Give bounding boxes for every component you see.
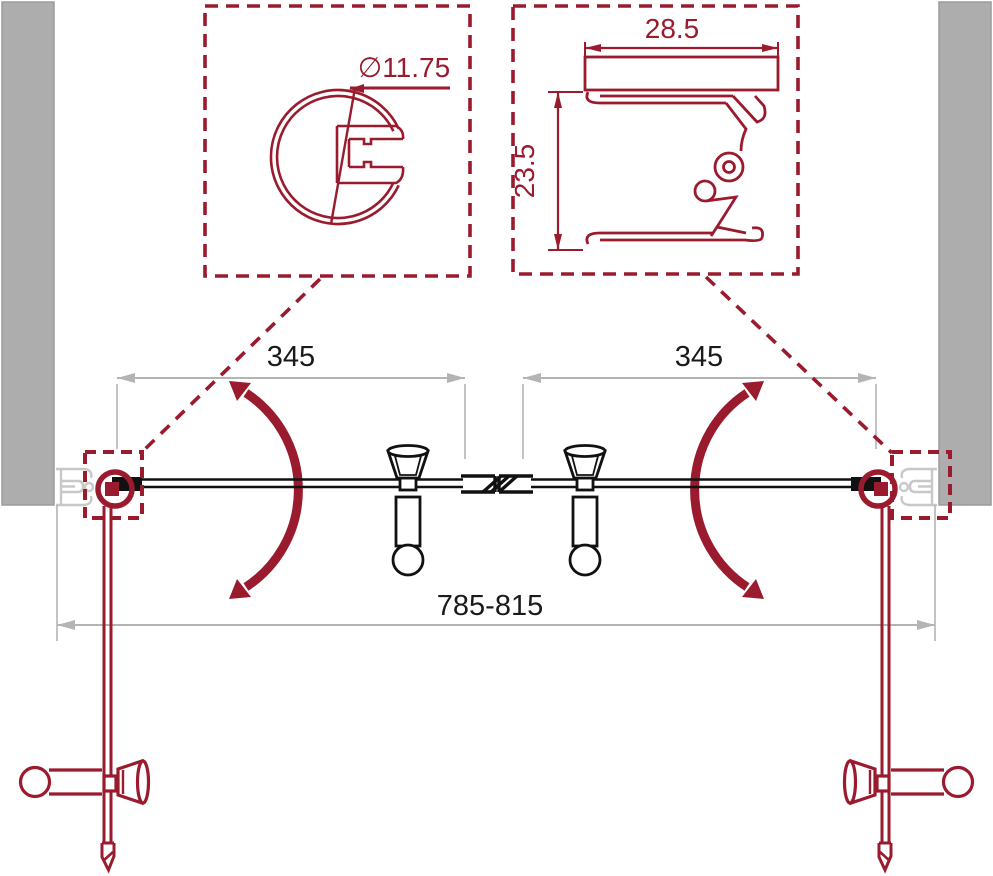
wall-profile-width-label: 28.5 — [645, 13, 700, 44]
left-door-knob — [388, 446, 428, 576]
left-hinge — [98, 472, 142, 506]
left-door-width-label: 345 — [267, 341, 315, 373]
left-open-door-handle — [21, 761, 149, 803]
left-door-swing-arrow — [229, 381, 298, 599]
detail-box-wall-profile: 28.5 23.5 — [509, 6, 798, 274]
right-open-door-leaf — [879, 506, 891, 870]
right-hinge — [851, 472, 895, 506]
wall-profile-height-label: 23.5 — [509, 144, 540, 199]
drawing-svg: 345 345 785-815 — [0, 0, 993, 876]
hinge-callout-boxes — [85, 452, 950, 518]
right-leader-dashed-line — [706, 277, 892, 453]
right-door-swing-arrow — [695, 381, 764, 599]
right-door-knob — [565, 446, 605, 576]
right-wall-profile-plan — [900, 469, 937, 505]
left-open-door-leaf — [102, 506, 114, 870]
right-open-door-handle — [845, 761, 973, 803]
right-wall — [939, 2, 991, 505]
left-wall-profile-plan — [56, 469, 93, 505]
technical-drawing-canvas: 345 345 785-815 — [0, 0, 993, 876]
detail-box-round-profile: ∅11.75 — [205, 6, 470, 276]
overall-width-label: 785-815 — [437, 590, 543, 622]
magnetic-closure — [461, 476, 533, 492]
left-wall — [2, 2, 54, 505]
wall-profile-section — [548, 42, 778, 250]
round-profile-diameter-label: ∅11.75 — [358, 52, 450, 83]
detail-leader-lines — [142, 277, 892, 453]
round-profile-section — [271, 84, 450, 224]
right-door-width-label: 345 — [675, 341, 723, 373]
